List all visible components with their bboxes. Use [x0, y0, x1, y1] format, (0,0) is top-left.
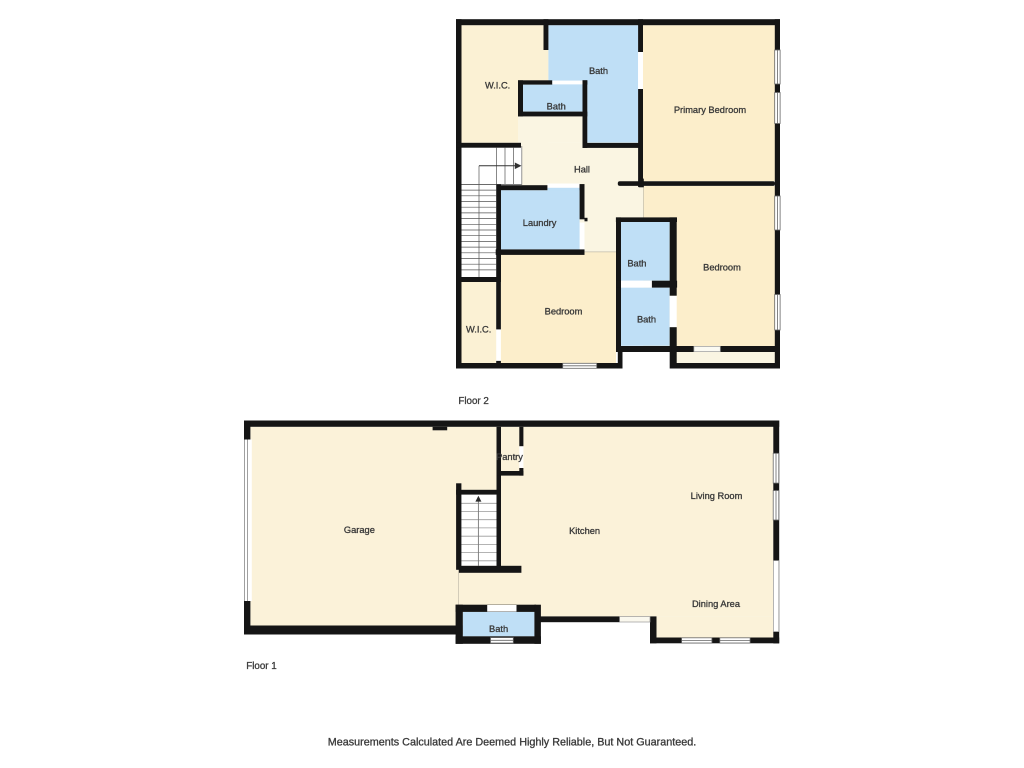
- svg-text:Bath: Bath: [637, 315, 656, 325]
- svg-text:Bedroom: Bedroom: [703, 263, 741, 273]
- svg-text:Floor 2: Floor 2: [458, 396, 489, 407]
- svg-text:Measurements Calculated Are De: Measurements Calculated Are Deemed Highl…: [328, 737, 697, 749]
- svg-text:Pantry: Pantry: [496, 452, 523, 462]
- svg-text:Kitchen: Kitchen: [569, 526, 600, 536]
- svg-text:Bath: Bath: [627, 259, 646, 269]
- svg-text:Bath: Bath: [489, 624, 508, 634]
- svg-text:Bath: Bath: [589, 66, 608, 76]
- svg-text:Living Room: Living Room: [691, 491, 743, 501]
- svg-text:Floor 1: Floor 1: [246, 661, 277, 672]
- svg-text:Laundry: Laundry: [523, 218, 557, 228]
- svg-text:W.I.C.: W.I.C.: [485, 80, 510, 90]
- svg-text:W.I.C.: W.I.C.: [466, 324, 491, 334]
- svg-text:Dining Area: Dining Area: [692, 599, 741, 609]
- svg-text:Garage: Garage: [344, 525, 375, 535]
- svg-text:Hall: Hall: [574, 165, 590, 175]
- svg-text:Bedroom: Bedroom: [545, 307, 583, 317]
- svg-text:Bath: Bath: [547, 101, 566, 111]
- svg-text:Primary Bedroom: Primary Bedroom: [674, 105, 747, 115]
